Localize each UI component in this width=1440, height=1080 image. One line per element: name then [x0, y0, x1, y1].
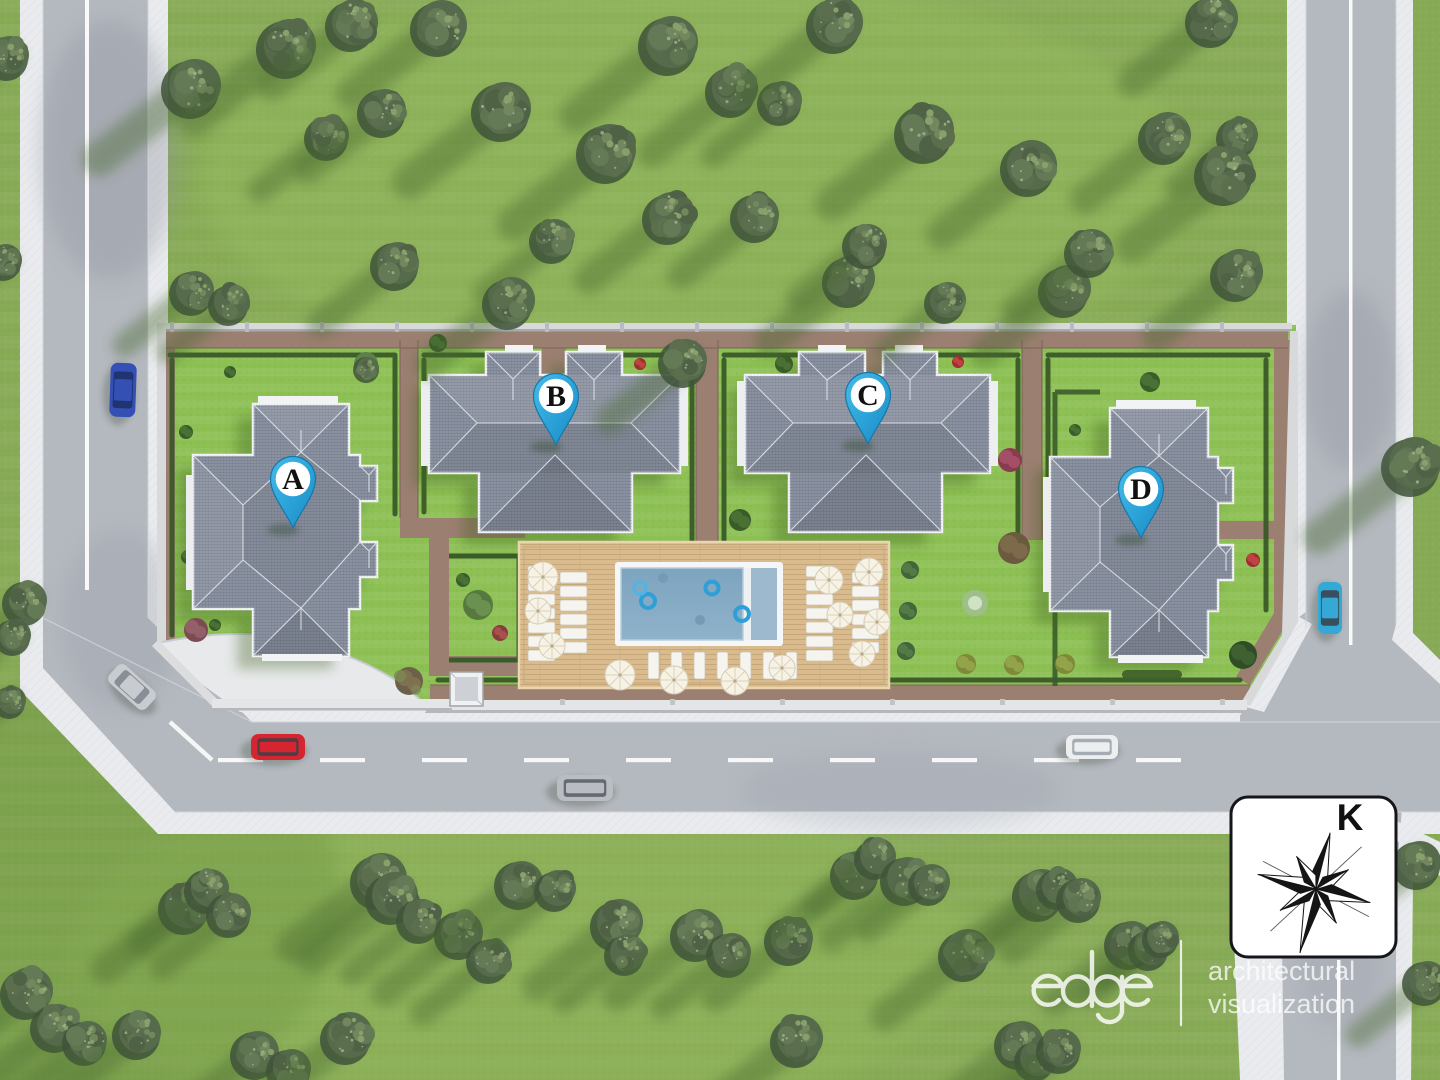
svg-text:architectural: architectural	[1208, 956, 1355, 986]
svg-text:B: B	[546, 380, 566, 413]
svg-text:visualization: visualization	[1208, 989, 1355, 1019]
svg-text:A: A	[282, 463, 304, 496]
svg-text:C: C	[857, 379, 879, 412]
svg-text:D: D	[1130, 473, 1152, 506]
svg-text:K: K	[1337, 797, 1364, 838]
